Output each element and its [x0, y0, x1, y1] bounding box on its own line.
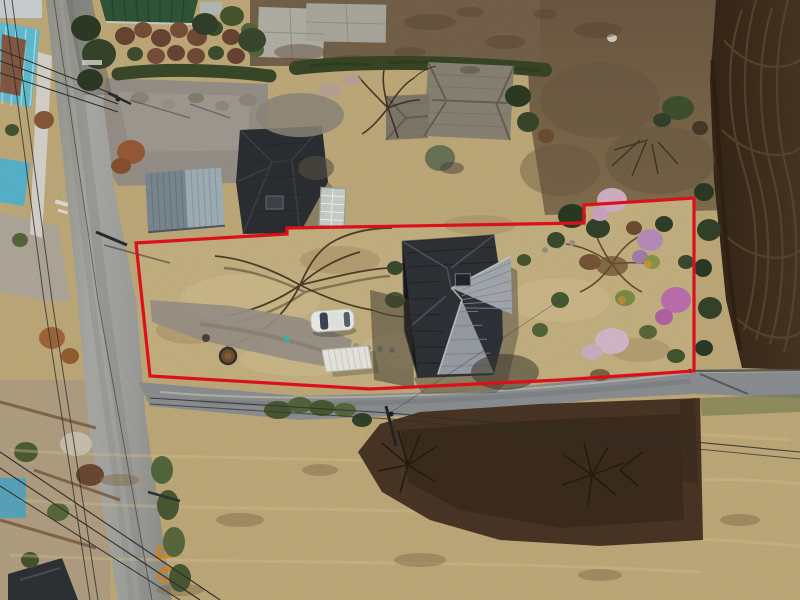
- aerial-photo-canvas: 40: [0, 0, 800, 600]
- aerial-photo: 40: [0, 0, 800, 600]
- photo-grain: [0, 0, 800, 600]
